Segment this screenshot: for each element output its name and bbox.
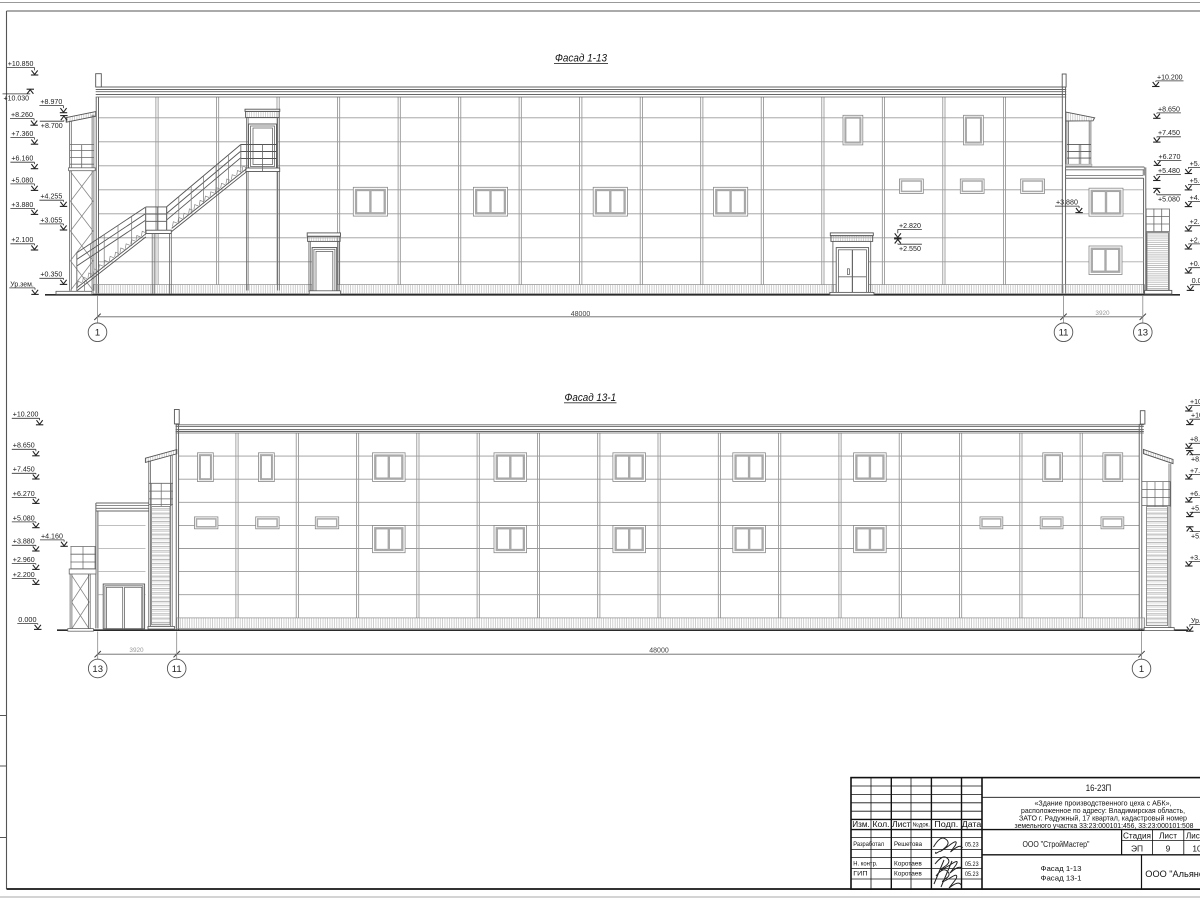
- svg-text:+7.360: +7.360: [1190, 466, 1200, 475]
- svg-text:+5.480: +5.480: [1191, 504, 1200, 513]
- svg-text:Фасад 13-1: Фасад 13-1: [565, 392, 617, 404]
- svg-text:+2.550: +2.550: [1190, 235, 1200, 244]
- svg-text:Фасад 1-13: Фасад 1-13: [1041, 864, 1082, 873]
- svg-text:+2.960: +2.960: [13, 555, 35, 564]
- svg-text:+8.700: +8.700: [1191, 454, 1200, 463]
- svg-text:+4.255: +4.255: [40, 192, 62, 201]
- svg-text:+4.255: +4.255: [1190, 193, 1200, 202]
- svg-text:+5.080: +5.080: [11, 175, 33, 184]
- svg-text:Фасад 1-13: Фасад 1-13: [555, 53, 608, 65]
- svg-text:Изм.: Изм.: [852, 819, 870, 829]
- svg-text:Н. контр.: Н. контр.: [853, 860, 877, 867]
- svg-text:+8.650: +8.650: [13, 441, 35, 450]
- svg-text:+2.550: +2.550: [899, 244, 921, 253]
- svg-text:+3.880: +3.880: [13, 537, 35, 546]
- svg-text:0.000: 0.000: [1192, 276, 1200, 285]
- svg-text:Ур.зем.: Ур.зем.: [10, 279, 34, 288]
- svg-text:+5.080: +5.080: [1158, 195, 1180, 204]
- svg-text:+4.160: +4.160: [41, 531, 63, 540]
- svg-text:ЭП: ЭП: [1131, 843, 1143, 853]
- svg-text:+3.880: +3.880: [11, 200, 33, 209]
- svg-text:05.23: 05.23: [965, 871, 979, 878]
- svg-text:11: 11: [1059, 328, 1069, 339]
- svg-text:+2.820: +2.820: [899, 221, 921, 230]
- svg-text:1: 1: [95, 328, 100, 339]
- svg-text:Кол.: Кол.: [873, 819, 890, 829]
- svg-text:48000: 48000: [571, 309, 591, 318]
- svg-text:Стадия: Стадия: [1123, 832, 1151, 841]
- svg-text:+6.270: +6.270: [13, 489, 35, 498]
- svg-text:+10.850: +10.850: [8, 59, 34, 68]
- svg-text:+6.270: +6.270: [1159, 152, 1181, 161]
- svg-text:+8.700: +8.700: [41, 121, 63, 130]
- svg-text:+8.970: +8.970: [1190, 435, 1200, 444]
- svg-text:13: 13: [1138, 328, 1149, 339]
- svg-text:+8.970: +8.970: [40, 97, 62, 106]
- svg-text:+10.030: +10.030: [4, 94, 30, 103]
- svg-text:1: 1: [1139, 664, 1144, 675]
- svg-text:05.23: 05.23: [965, 861, 979, 868]
- svg-text:Лист: Лист: [892, 819, 911, 829]
- svg-text:+3.880: +3.880: [1056, 198, 1078, 207]
- svg-text:10: 10: [1192, 843, 1200, 853]
- svg-text:Подп.: Подп.: [934, 819, 958, 829]
- svg-text:+8.650: +8.650: [1158, 104, 1180, 113]
- svg-text:ГИП: ГИП: [853, 870, 868, 877]
- svg-text:ООО "СтройМастер": ООО "СтройМастер": [1023, 840, 1090, 849]
- svg-text:Ур.зем.: Ур.зем.: [1191, 616, 1200, 625]
- svg-text:48000: 48000: [649, 646, 669, 655]
- svg-text:+7.450: +7.450: [13, 465, 35, 474]
- svg-text:Решетова: Решетова: [894, 841, 922, 848]
- svg-text:+0.350: +0.350: [40, 270, 62, 279]
- svg-text:05.23: 05.23: [965, 842, 979, 849]
- svg-text:+5.080: +5.080: [1191, 531, 1200, 540]
- svg-text:16-23П: 16-23П: [1086, 783, 1112, 794]
- svg-text:13: 13: [92, 664, 103, 675]
- svg-text:Фасад 13-1: Фасад 13-1: [1041, 873, 1082, 882]
- svg-text:3920: 3920: [1095, 310, 1110, 317]
- svg-text:Лист: Лист: [1159, 832, 1177, 841]
- svg-text:+5.080: +5.080: [13, 513, 35, 522]
- svg-text:+10.200: +10.200: [1157, 72, 1183, 81]
- svg-text:+3.055: +3.055: [40, 215, 62, 224]
- svg-text:+6.160: +6.160: [1190, 489, 1200, 498]
- svg-text:+7.450: +7.450: [1158, 128, 1180, 137]
- svg-text:+2.100: +2.100: [11, 235, 33, 244]
- svg-text:+7.360: +7.360: [11, 129, 33, 138]
- svg-text:+0.350: +0.350: [1190, 259, 1200, 268]
- svg-text:0.000: 0.000: [18, 615, 36, 624]
- svg-text:+10.030: +10.030: [1191, 411, 1200, 420]
- svg-text:+10.850: +10.850: [1190, 397, 1200, 406]
- svg-text:11: 11: [172, 664, 182, 675]
- svg-text:Коротаев: Коротаев: [894, 860, 922, 867]
- svg-text:+10.200: +10.200: [13, 410, 39, 419]
- svg-text:Коротаев: Коротаев: [894, 870, 922, 877]
- svg-text:Разработал: Разработал: [853, 840, 884, 848]
- svg-text:3920: 3920: [129, 647, 144, 654]
- svg-text:9: 9: [1166, 843, 1171, 853]
- svg-text:+2.200: +2.200: [13, 570, 35, 579]
- svg-text:+6.160: +6.160: [11, 154, 33, 163]
- svg-text:+3.055: +3.055: [1190, 553, 1200, 562]
- svg-text:+5.480: +5.480: [1158, 166, 1180, 175]
- svg-text:земельного участка 33:23:00010: земельного участка 33:23:000101:456, 33:…: [1015, 821, 1194, 830]
- svg-text:Дата: Дата: [962, 819, 982, 829]
- svg-text:+2.820: +2.820: [1190, 217, 1200, 226]
- svg-text:+5.080: +5.080: [1190, 176, 1200, 185]
- svg-text:Листов: Листов: [1186, 832, 1200, 841]
- svg-text:ООО "Альянс": ООО "Альянс": [1145, 869, 1200, 879]
- svg-text:+8.260: +8.260: [11, 110, 33, 119]
- svg-text:+5.480: +5.480: [1190, 159, 1200, 168]
- svg-text:№док.: №док.: [912, 822, 930, 829]
